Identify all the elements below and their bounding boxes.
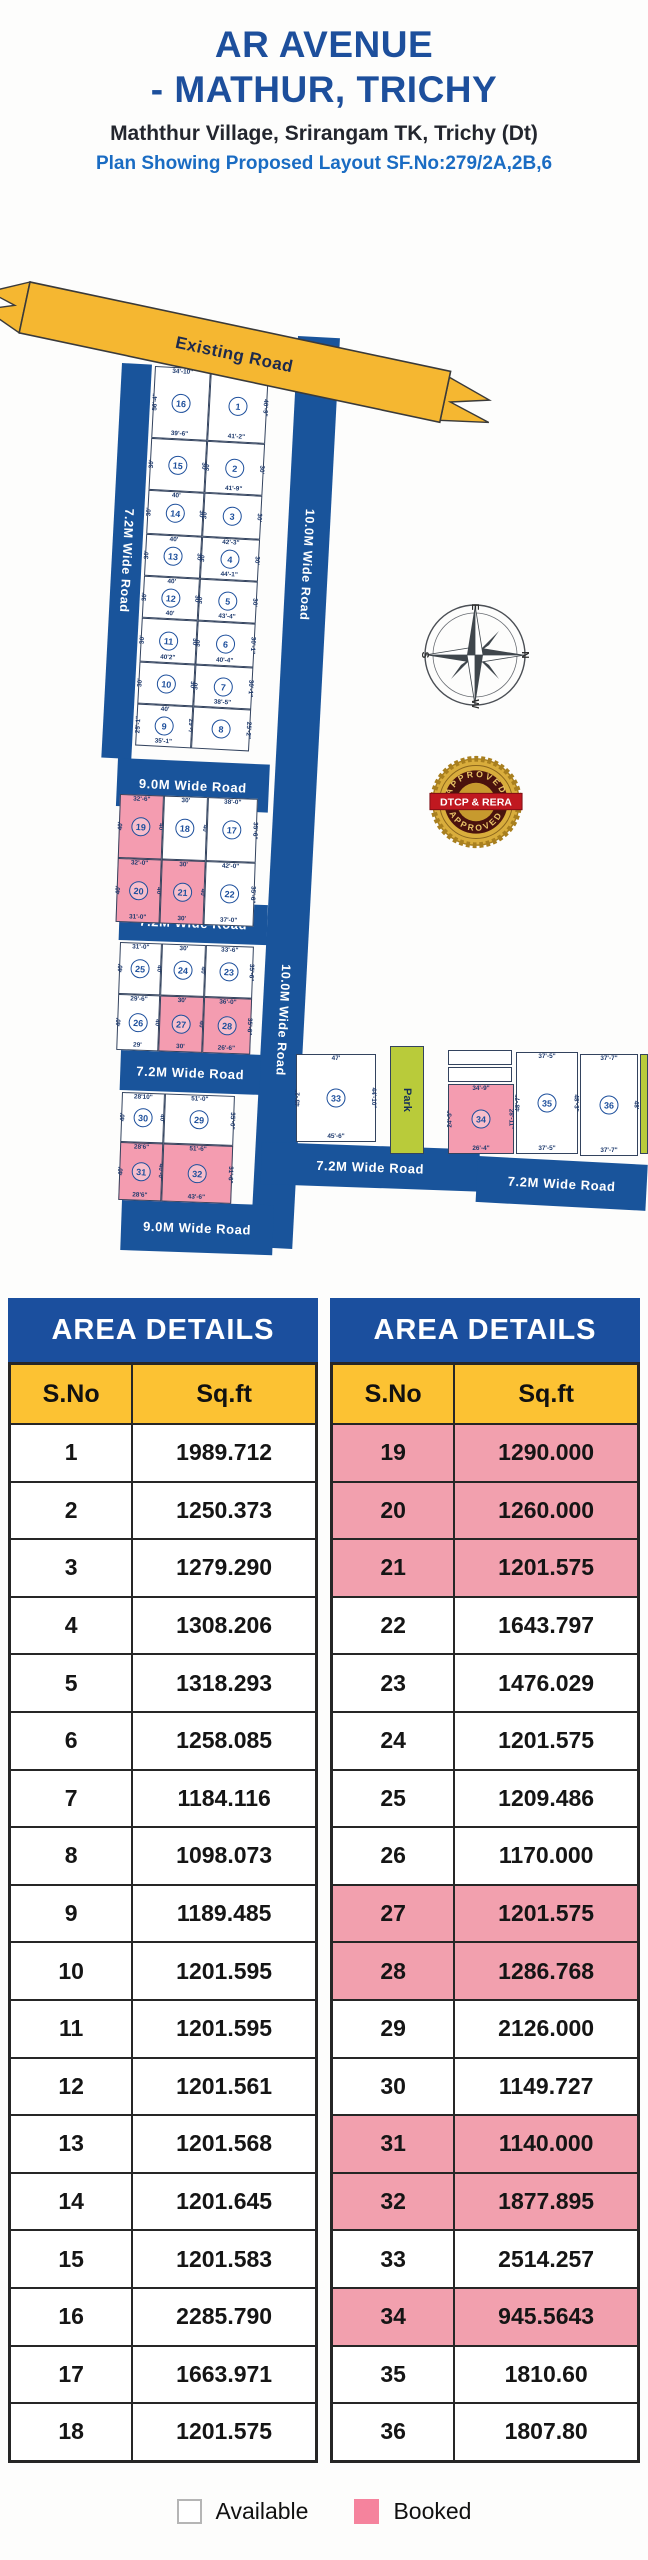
plot-dim: 51'-0" [191, 1096, 209, 1103]
plot-dim: 40'-9" [260, 399, 267, 417]
plot-dim: 34'-6" [231, 372, 249, 379]
plot-dim: 40' [166, 610, 175, 617]
plot-number: 25 [130, 959, 150, 979]
cell-sqft: 1209.486 [454, 1770, 638, 1828]
plot-number: 10 [156, 674, 177, 695]
plot-dim: 42'-3" [222, 540, 240, 547]
plot-dim: 30' [178, 998, 187, 1005]
plot-31: 28'6"28'6"40'40'-0"31 [118, 1142, 163, 1201]
plot-dim: 29'-6" [130, 996, 148, 1003]
cell-sqft: 2126.000 [454, 2000, 638, 2058]
compass-rose-icon: E N W S [420, 600, 530, 710]
plot-number: 30 [132, 1108, 152, 1128]
cell-sno: 21 [332, 1539, 455, 1597]
plot-block-top: 34'-10"39'-6"56'-4"1634'-6"41'-2"40'-9"1… [135, 366, 269, 751]
col-header-sno: S.No [332, 1364, 455, 1425]
plot-dim: 34'-9" [472, 1086, 489, 1092]
plot-dim: 40' [172, 493, 181, 500]
cell-sno: 35 [332, 2346, 455, 2404]
plot-dim: 40' [118, 964, 125, 973]
legend-booked-label: Booked [393, 2498, 471, 2525]
cell-sqft: 1201.575 [454, 1712, 638, 1770]
plot-number: 35 [537, 1093, 557, 1113]
col-header-sno: S.No [10, 1364, 133, 1425]
plot-dim: 30' [196, 638, 203, 647]
plot-number: 16 [171, 393, 192, 414]
booked-chip-icon [354, 2499, 379, 2524]
cell-sqft: 1807.80 [454, 2403, 638, 2461]
cell-sno: 36 [332, 2403, 455, 2461]
plot-1: 34'-6"41'-2"40'-9"1 [207, 369, 269, 444]
plot-number: 3 [222, 506, 243, 527]
plot-dim: 30' [181, 798, 190, 805]
plot-number: 7 [213, 677, 234, 698]
legend-available-label: Available [216, 2498, 309, 2525]
available-chip-icon [177, 2499, 202, 2524]
table-row: 261170.000 [332, 1827, 639, 1885]
plot-11: 40'2"30'30'11 [140, 618, 198, 665]
road-label: 10.0M Wide Road [297, 509, 317, 621]
table-row: 31279.290 [10, 1539, 317, 1597]
cell-sqft: 1201.595 [132, 1942, 316, 2000]
seal-approved-bottom: APPROVED [447, 809, 504, 833]
table-row: 191290.000 [332, 1424, 639, 1482]
road-9m-bottom: 9.0M Wide Road [120, 1200, 274, 1255]
cell-sqft: 1098.073 [132, 1827, 316, 1885]
road-label: 10.0M Wide Road [273, 964, 293, 1076]
plot-dim: 37'-7" [600, 1148, 617, 1154]
cell-sqft: 1149.727 [454, 2058, 638, 2116]
plot-number: 33 [326, 1088, 346, 1108]
cell-sqft: 1308.206 [132, 1597, 316, 1655]
plot-dim: 38'-0" [224, 800, 242, 807]
legend-booked: Booked [354, 2498, 471, 2525]
plot-number: 1 [228, 396, 249, 417]
plot-dim: 30'-1" [246, 680, 253, 698]
cell-sqft: 1643.797 [454, 1597, 638, 1655]
cell-sno: 25 [332, 1770, 455, 1828]
table-row: 162285.790 [10, 2288, 317, 2346]
legend-available: Available [177, 2498, 309, 2525]
plot-dim: 30' [179, 946, 188, 953]
road-label: 7.2M Wide Road [117, 509, 136, 614]
cell-sqft: 1201.568 [132, 2115, 316, 2173]
plot-16: 34'-10"39'-6"56'-4"16 [151, 366, 211, 441]
cell-sno: 34 [332, 2288, 455, 2346]
plot-15: 30'30'15 [149, 438, 208, 493]
plot-dim: 37'-5" [538, 1146, 555, 1152]
plot-dim: 30' [144, 550, 151, 559]
plot-dim: 35'-6" [248, 886, 255, 904]
table-row: 271201.575 [332, 1885, 639, 1943]
plot-dim: 45'-6" [327, 1134, 344, 1140]
plot-dim: 41'-9" [225, 485, 243, 492]
road-72m-mid2: 7.2M Wide Road [120, 1050, 261, 1095]
table-row: 11989.712 [10, 1424, 317, 1482]
plot-dim: 30' [179, 862, 188, 869]
plot-dim: 35'-6" [247, 964, 254, 982]
plot-22: 42'-0"37'-0"35'-6"22 [203, 861, 255, 927]
table-row: 131201.568 [10, 2115, 317, 2173]
cell-sno: 13 [10, 2115, 133, 2173]
plot-number: 32 [187, 1164, 207, 1184]
table-row: 41308.206 [10, 1597, 317, 1655]
plot-34: 34'-9"26'-4"24'-5"28'-11"34 [448, 1084, 514, 1154]
plot-17: 38'-0"35'-6"17 [206, 797, 258, 863]
plot-number: 18 [175, 818, 195, 838]
plot-number: 12 [161, 588, 182, 609]
cell-sqft: 1201.645 [132, 2173, 316, 2231]
table-row: 301149.727 [332, 2058, 639, 2116]
plot-dim: 35'-1" [155, 738, 173, 745]
plot-dim: 30'-1" [248, 637, 255, 655]
cell-sqft: 1140.000 [454, 2115, 638, 2173]
site-plan: 7.2M Wide Road 10.0M Wide Road 10.0M Wid… [0, 198, 648, 1280]
road-72m-bottom-left: 7.2M Wide Road [261, 1142, 480, 1192]
plot-number: 36 [599, 1095, 619, 1115]
plot-block-d: 28'10"40'40'3051'-0"35'-0"2928'6"28'6"40… [118, 1092, 235, 1204]
plot-dim: 45'-2" [296, 1089, 302, 1106]
plot-dim: 40'-4" [216, 657, 234, 664]
table-row: 141201.645 [10, 2173, 317, 2231]
cell-sqft: 2285.790 [132, 2288, 316, 2346]
plot-dim: 30' [255, 513, 262, 522]
cell-sqft: 1476.029 [454, 1654, 638, 1712]
plot-19: 32'-6"40'40'19 [118, 794, 164, 859]
plot-dim: 40' [118, 1167, 125, 1176]
plot-block-c: 31'-0"40'40'2530'40'2433'-6"35'-6"2329'-… [116, 942, 254, 1055]
table-row: 231476.029 [332, 1654, 639, 1712]
plot-dim: 48'-3" [572, 1094, 578, 1111]
plot-number: 4 [220, 549, 241, 570]
plot-24: 30'40'24 [160, 943, 206, 997]
plot-dim: 40' [169, 537, 178, 544]
cell-sno: 30 [332, 2058, 455, 2116]
plot-dim: 39'-6" [171, 431, 189, 438]
plot-8: 25'-2"8 [191, 706, 251, 751]
plot-number: 22 [219, 884, 239, 904]
legend: Available Booked [0, 2498, 648, 2525]
plot-3: 30'30'3 [202, 493, 262, 540]
road-label: 7.2M Wide Road [136, 1063, 244, 1082]
plot-dim: 26'-6" [218, 1045, 236, 1052]
dtcp-rera-seal: APPROVED APPROVED DTCP & RERA [428, 754, 524, 850]
plot-dim: 35'-6" [245, 1018, 252, 1036]
plot-dim: 30' [253, 556, 260, 565]
table-row: 241201.575 [332, 1712, 639, 1770]
plot-dim: 34'-10" [172, 369, 193, 376]
table-row: 34945.5643 [332, 2288, 639, 2346]
cell-sno: 23 [332, 1654, 455, 1712]
col-header-sqft: Sq.ft [132, 1364, 316, 1425]
compass-w: W [469, 699, 480, 709]
cell-sqft: 1279.290 [132, 1539, 316, 1597]
plot-number: 14 [165, 503, 186, 524]
plot-dim: 30' [177, 916, 186, 923]
plot-dim: 28'6" [132, 1192, 147, 1199]
plot-dim: 51'-6" [189, 1146, 207, 1153]
plot-dim: 40' [120, 1113, 127, 1122]
cell-sno: 12 [10, 2058, 133, 2116]
plot-13: 40'30'30'13 [144, 534, 202, 579]
plot-dim: 25'-1" [135, 716, 142, 734]
plot-dim: 31'-0" [132, 944, 150, 951]
header-plan-line: Plan Showing Proposed Layout SF.No:279/2… [0, 153, 648, 175]
plot-number: 5 [218, 591, 239, 612]
plot-21: 30'30'40'21 [160, 859, 206, 924]
plot-number: 23 [219, 962, 239, 982]
cell-sqft: 1201.575 [454, 1539, 638, 1597]
cell-sqft: 1184.116 [132, 1770, 316, 1828]
plot-number: 31 [131, 1162, 151, 1182]
compass-s: S [420, 652, 430, 659]
plot-2: 41'-9"30'30'2 [204, 441, 265, 496]
plot-dim: 37'-7" [600, 1056, 617, 1062]
seal-dtcp-rera-label: DTCP & RERA [440, 796, 512, 808]
cell-sqft: 1201.595 [132, 2000, 316, 2058]
plot-14: 40'30'30'14 [146, 490, 204, 537]
plot-number: 9 [154, 716, 175, 737]
area-details-table-left: AREA DETAILS S.No Sq.ft 11989.71221250.3… [8, 1298, 318, 2463]
svg-text:APPROVED: APPROVED [443, 769, 509, 797]
cell-sqft: 1663.971 [132, 2346, 316, 2404]
table-row: 61258.085 [10, 1712, 317, 1770]
cell-sno: 27 [332, 1885, 455, 1943]
plot-dim: 38'-5" [214, 699, 232, 706]
plot-33: 47'45'-6"45'-2"44'-10"33 [296, 1054, 376, 1142]
plot-dim: 40' [161, 707, 170, 714]
cell-sno: 7 [10, 1770, 133, 1828]
area-details-table-right: AREA DETAILS S.No Sq.ft 191290.000201260… [330, 1298, 640, 2463]
table-row: 221643.797 [332, 1597, 639, 1655]
reserved-strip-1 [448, 1050, 512, 1065]
plot-number: 20 [128, 881, 148, 901]
cell-sqft: 1286.768 [454, 1942, 638, 2000]
compass-e: E [469, 604, 480, 611]
cell-sno: 14 [10, 2173, 133, 2231]
cell-sno: 32 [332, 2173, 455, 2231]
table-row: 321877.895 [332, 2173, 639, 2231]
plot-dim: 32'-0" [131, 860, 149, 867]
plot-dim: 30' [193, 681, 200, 690]
cell-sqft: 945.5643 [454, 2288, 638, 2346]
table-title: AREA DETAILS [330, 1298, 640, 1362]
plot-18: 30'40'18 [162, 796, 208, 861]
plot-28: 36'-0"26'-6"35'-6"28 [202, 997, 252, 1055]
plot-number: 26 [128, 1013, 148, 1033]
plot-dim: 30' [146, 507, 153, 516]
plot-9: 40'35'-1"25'-1"29'-7"9 [135, 704, 193, 749]
plot-number: 19 [131, 817, 151, 837]
cell-sno: 17 [10, 2346, 133, 2404]
table-row: 201260.000 [332, 1482, 639, 1540]
plot-4: 42'-3"44'-1"30'30'4 [200, 537, 260, 582]
plot-dim: 30' [205, 462, 212, 471]
plot-dim: 41'-2" [228, 434, 246, 441]
plot-dim: 30' [137, 678, 144, 687]
plot-dim: 25'-2" [244, 721, 251, 739]
plot-number: 13 [163, 546, 184, 567]
plot-number: 28 [217, 1016, 237, 1036]
plot-32: 51'-6"43'-6"31'-6"32 [161, 1143, 233, 1203]
table-row: 171663.971 [10, 2346, 317, 2404]
table-row: 111201.595 [10, 2000, 317, 2058]
plot-dim: 31'-0" [129, 914, 147, 921]
cell-sqft: 1201.575 [132, 2403, 316, 2461]
cell-sno: 4 [10, 1597, 133, 1655]
cell-sqft: 1189.485 [132, 1885, 316, 1943]
plot-dim: 30' [202, 510, 209, 519]
plot-23: 33'-6"35'-6"23 [204, 945, 254, 999]
cell-sno: 19 [332, 1424, 455, 1482]
cell-sqft: 1201.575 [454, 1885, 638, 1943]
cell-sno: 10 [10, 1942, 133, 2000]
compass-n: N [519, 651, 530, 658]
header-subtitle: Maththur Village, Srirangam TK, Trichy (… [0, 122, 648, 146]
plot-dim: 36'-0" [219, 1000, 237, 1007]
table-row: 332514.257 [332, 2230, 639, 2288]
road-label: 9.0M Wide Road [143, 1218, 251, 1237]
plot-dim: 42'-0" [222, 864, 240, 871]
cell-sno: 22 [332, 1597, 455, 1655]
plot-35: 37'-5"37'-5"48'-7"48'-3"35 [516, 1052, 578, 1154]
cell-sqft: 1201.583 [132, 2230, 316, 2288]
plot-dim: 35'-6" [250, 822, 257, 840]
plot-36: 37'-7"37'-7"48'36 [580, 1054, 638, 1156]
plot-dim: 28'6" [134, 1144, 149, 1151]
road-label: 7.2M Wide Road [507, 1173, 616, 1194]
cell-sqft: 1810.60 [454, 2346, 638, 2404]
plot-number: 29 [189, 1110, 209, 1130]
table-row: 351810.60 [332, 2346, 639, 2404]
plot-dim: 30' [198, 595, 205, 604]
cell-sqft: 1170.000 [454, 1827, 638, 1885]
cell-sqft: 1318.293 [132, 1654, 316, 1712]
park-area: Park [390, 1046, 424, 1154]
table-row: 81098.073 [10, 1827, 317, 1885]
col-header-sqft: Sq.ft [454, 1364, 638, 1425]
plot-dim: 28'10" [134, 1094, 153, 1101]
cell-sno: 28 [332, 1942, 455, 2000]
plot-dim: 48' [632, 1101, 638, 1110]
flyer-page: AR AVENUE - MATHUR, TRICHY Maththur Vill… [0, 0, 648, 2560]
cell-sqft: 2514.257 [454, 2230, 638, 2288]
cell-sqft: 1290.000 [454, 1424, 638, 1482]
plot-12: 40'40'30'30'12 [142, 576, 200, 621]
plot-29: 51'-0"35'-0"29 [163, 1094, 235, 1146]
plot-7: 38'-5"30'30'-1"7 [193, 665, 253, 710]
plot-block-b: 32'-6"40'40'1930'40'1838'-0"35'-6"1732'-… [116, 794, 258, 927]
cell-sno: 8 [10, 1827, 133, 1885]
plot-number: 27 [171, 1014, 191, 1034]
table-row: 51318.293 [10, 1654, 317, 1712]
plot-dim: 33'-6" [221, 948, 239, 955]
reserved-strip-2 [448, 1067, 512, 1082]
table-row: 181201.575 [10, 2403, 317, 2461]
cell-sno: 18 [10, 2403, 133, 2461]
page-title-line2: - MATHUR, TRICHY [0, 67, 648, 112]
plot-number: 6 [215, 634, 236, 655]
table-row: 121201.561 [10, 2058, 317, 2116]
cell-sno: 20 [332, 1482, 455, 1540]
plot-30: 28'10"40'40'30 [120, 1092, 165, 1143]
cell-sno: 31 [332, 2115, 455, 2173]
plot-dim: 40' [167, 579, 176, 586]
plot-27: 30'30'40'27 [158, 995, 204, 1053]
table-row: 151201.583 [10, 2230, 317, 2288]
table-row: 251209.486 [332, 1770, 639, 1828]
cell-sno: 5 [10, 1654, 133, 1712]
park-label: Park [401, 1088, 413, 1112]
svg-text:APPROVED: APPROVED [447, 809, 504, 833]
cell-sqft: 1989.712 [132, 1424, 316, 1482]
cell-sno: 6 [10, 1712, 133, 1770]
plot-dim: 44'-1" [220, 571, 238, 578]
table-row: 71184.116 [10, 1770, 317, 1828]
cell-sno: 2 [10, 1482, 133, 1540]
table-row: 91189.485 [10, 1885, 317, 1943]
plot-dim: 30' [149, 460, 156, 469]
plot-26: 29'-6"29'40'40'26 [116, 994, 160, 1051]
green-strip-right [640, 1054, 648, 1154]
cell-sno: 3 [10, 1539, 133, 1597]
cell-sqft: 1260.000 [454, 1482, 638, 1540]
plot-dim: 30' [142, 592, 149, 601]
cell-sno: 33 [332, 2230, 455, 2288]
plot-number: 8 [211, 719, 232, 740]
plot-dim: 40' [116, 1018, 123, 1027]
plot-dim: 30' [140, 635, 147, 644]
table-row: 292126.000 [332, 2000, 639, 2058]
plot-dim: 35'-0" [228, 1112, 235, 1130]
plot-10: 30'30'10 [137, 662, 195, 707]
plot-dim: 37'-5" [538, 1054, 555, 1060]
plot-dim: 40'2" [160, 654, 176, 661]
plot-20: 32'-0"31'-0"40'40'20 [116, 858, 162, 923]
plot-dim: 40' [118, 822, 125, 831]
table-row: 211201.575 [332, 1539, 639, 1597]
table-row: 311140.000 [332, 2115, 639, 2173]
plot-25: 31'-0"40'40'25 [118, 942, 162, 995]
plot-dim: 56'-4" [152, 393, 159, 411]
table-row: 361807.80 [332, 2403, 639, 2461]
plot-number: 11 [158, 631, 179, 652]
table-row: 101201.595 [10, 1942, 317, 2000]
cell-sno: 16 [10, 2288, 133, 2346]
header: AR AVENUE - MATHUR, TRICHY Maththur Vill… [0, 22, 648, 175]
plot-dim: 37'-0" [220, 917, 238, 924]
plot-dim: 43'-6" [188, 1194, 206, 1201]
plot-dim: 24'-5" [448, 1110, 454, 1127]
plot-dim: 44'-10" [370, 1088, 376, 1109]
plot-number: 21 [172, 882, 192, 902]
plot-dim: 30' [200, 553, 207, 562]
plot-dim: 30' [176, 1044, 185, 1051]
cell-sqft: 1258.085 [132, 1712, 316, 1770]
table-row: 281286.768 [332, 1942, 639, 2000]
cell-sno: 24 [332, 1712, 455, 1770]
plot-dim: 31'-6" [226, 1166, 233, 1184]
cell-sno: 29 [332, 2000, 455, 2058]
cell-sqft: 1250.373 [132, 1482, 316, 1540]
plot-number: 24 [173, 960, 193, 980]
cell-sno: 15 [10, 2230, 133, 2288]
cell-sqft: 1201.561 [132, 2058, 316, 2116]
plot-dim: 47' [332, 1056, 341, 1062]
plot-dim: 28'-11" [508, 1109, 514, 1130]
plot-dim: 30' [258, 465, 265, 474]
page-title-line1: AR AVENUE [0, 22, 648, 67]
